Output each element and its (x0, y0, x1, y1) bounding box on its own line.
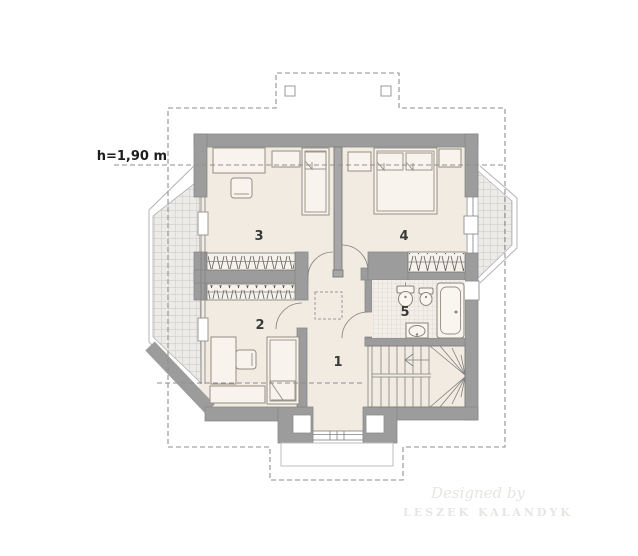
nightstand-right-icon (439, 149, 461, 167)
bed-single-room3-icon (302, 148, 329, 215)
bay-flue-right (366, 415, 384, 433)
right-balcony (478, 166, 517, 283)
room-label-3: 3 (254, 229, 263, 244)
balcony-door-east (464, 216, 478, 234)
watermark-line2: LESZEK KALANDYK (403, 506, 573, 519)
chair-room2-icon (236, 350, 256, 369)
room-label-1: 1 (333, 355, 342, 370)
wardrobe-room4-icon (408, 252, 465, 272)
bed-single-room2-icon (267, 337, 299, 404)
bed-double-room4-icon (374, 148, 437, 214)
shelf-room2-icon (210, 386, 265, 403)
roof-window-right (381, 86, 391, 96)
window-room3-west (198, 212, 208, 235)
toilet-icon (397, 283, 414, 307)
roof-window-left (285, 86, 295, 96)
chair-room3-icon (231, 178, 252, 198)
nightstand-left-icon (348, 152, 371, 171)
desk-room2-icon (211, 337, 236, 384)
desk-room3-icon (213, 148, 265, 173)
wardrobe-room3-icon (207, 253, 295, 270)
bay-flue-left (293, 415, 311, 433)
terrace-below (281, 443, 393, 466)
floor-plan-drawing: h=1,90 m 1 2 3 4 5 Designed by LESZEK KA… (0, 0, 638, 556)
height-label: h=1,90 m (97, 149, 167, 164)
wardrobe-room2-icon (207, 284, 295, 300)
bathtub-icon (437, 283, 464, 338)
watermark: Designed by LESZEK KALANDYK (403, 484, 573, 519)
room-label-2: 2 (255, 318, 264, 333)
bidet-icon (419, 288, 433, 306)
room-label-4: 4 (399, 229, 408, 244)
watermark-line1: Designed by (430, 484, 526, 502)
bathroom (372, 280, 465, 338)
bay-window (313, 431, 363, 440)
window-bath-east (463, 281, 479, 300)
floor-plan: h=1,90 m 1 2 3 4 5 Designed by LESZEK KA… (0, 0, 638, 556)
room-label-5: 5 (400, 305, 409, 320)
window-room2-west (198, 318, 208, 341)
sink-icon (406, 323, 428, 338)
